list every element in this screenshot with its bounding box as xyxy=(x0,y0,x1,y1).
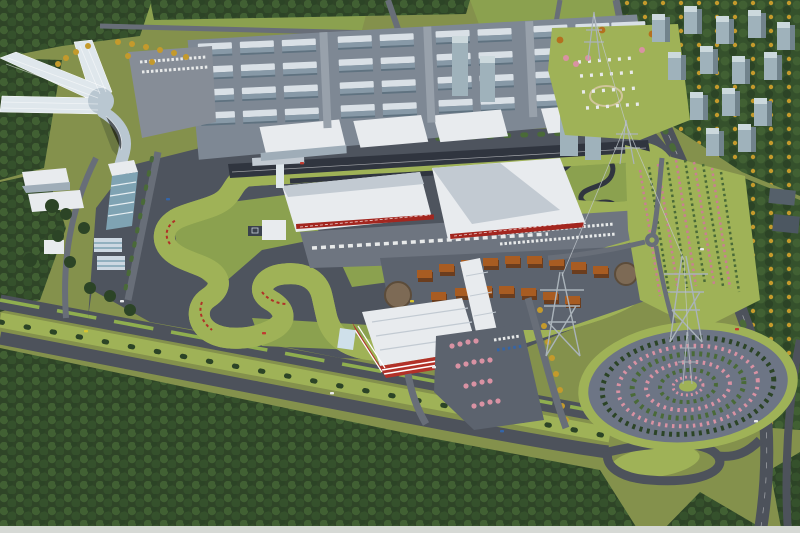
aerial-site-rendering xyxy=(0,0,800,533)
storage-shed xyxy=(768,188,795,206)
bottom-strip xyxy=(0,526,800,533)
aerial-rendering-stage: Aerial masterplan rendering of a motorsp… xyxy=(0,0,800,533)
blue-shed xyxy=(337,328,356,350)
storage-shed xyxy=(772,214,800,234)
pit-annex xyxy=(262,220,286,240)
